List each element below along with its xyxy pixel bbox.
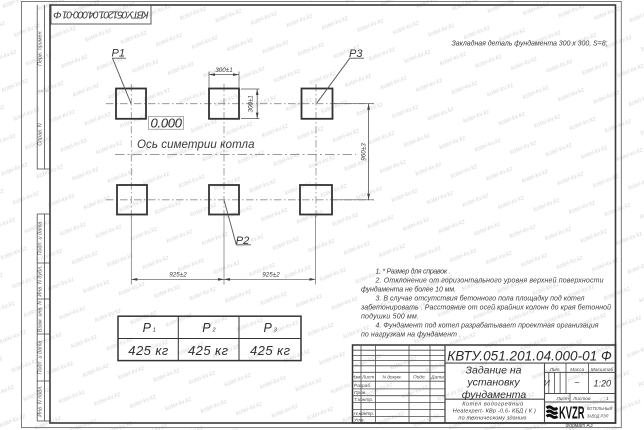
svg-text:1: 1 <box>606 396 609 402</box>
svg-text:Т.контр.: Т.контр. <box>354 397 373 403</box>
svg-text:Листов: Листов <box>572 396 591 402</box>
svg-text:Котел водогрейный: Котел водогрейный <box>462 400 523 407</box>
svg-text:по нагрузкам на фундамент .: по нагрузкам на фундамент . <box>361 330 461 338</box>
svg-text:1: 1 <box>153 328 156 334</box>
svg-text:–: – <box>574 377 580 386</box>
svg-text:И: И <box>544 378 551 388</box>
svg-text:Задание на: Задание на <box>466 364 522 376</box>
svg-text:Перв. примен.: Перв. примен. <box>38 30 44 66</box>
svg-text:300±1: 300±1 <box>215 67 232 74</box>
svg-text:Подп.: Подп. <box>413 375 426 381</box>
svg-text:Изм.: Изм. <box>352 375 362 381</box>
svg-text:1:20: 1:20 <box>594 379 612 389</box>
svg-text:фундамента не более 10 мм.: фундамента не более 10 мм. <box>361 285 456 293</box>
svg-text:P: P <box>143 321 152 335</box>
svg-text:925±2: 925±2 <box>262 272 280 279</box>
svg-text:Дата: Дата <box>430 375 444 381</box>
svg-text:Инв. N подл.: Инв. N подл. <box>38 385 44 417</box>
svg-text:P2: P2 <box>236 235 249 247</box>
svg-text:P3: P3 <box>349 48 363 60</box>
svg-text:Лист: Лист <box>556 396 569 402</box>
svg-text:Лит.: Лит. <box>549 367 561 373</box>
svg-text:425 кг: 425 кг <box>128 343 169 358</box>
svg-text:Heatexpert- КВр -0,6- КБД ( К: Heatexpert- КВр -0,6- КБД ( К ) <box>453 409 536 415</box>
svg-text:Утв.: Утв. <box>354 417 365 423</box>
svg-text:KVZR: KVZR <box>559 402 585 422</box>
svg-text:Справ. N: Справ. N <box>38 123 44 146</box>
svg-text:425 кг: 425 кг <box>188 343 229 358</box>
svg-text:960±3: 960±3 <box>361 143 368 161</box>
svg-text:425 кг: 425 кг <box>250 343 291 358</box>
svg-text:Формат А3: Формат А3 <box>565 423 593 429</box>
svg-text:по техническому зданию: по техническому зданию <box>458 416 526 422</box>
svg-text:P1: P1 <box>112 47 125 59</box>
svg-text:Взам. инв. N: Взам. инв. N <box>38 301 44 333</box>
svg-text:фундамента: фундамента <box>462 389 527 401</box>
svg-text:1. * Размер для справок .: 1. * Размер для справок . <box>376 267 451 275</box>
svg-text:2. Отклонение от горизонтал: 2. Отклонение от горизонтального уровня … <box>375 276 604 284</box>
svg-text:Закладная деталь фундамента 3: Закладная деталь фундамента 300 х 300, S… <box>452 39 608 47</box>
svg-text:P: P <box>202 321 211 335</box>
svg-text:установку: установку <box>466 377 520 389</box>
svg-text:Подп. и дата: Подп. и дата <box>38 222 44 256</box>
svg-text:Лист: Лист <box>361 375 374 381</box>
svg-text:925±2: 925±2 <box>169 272 187 279</box>
svg-text:забетонировать . Расстояние: забетонировать . Расстояние от осей край… <box>360 303 611 311</box>
svg-text:Инв. N дубл.: Инв. N дубл. <box>38 265 44 296</box>
svg-text:P: P <box>264 321 273 335</box>
svg-text:300±1: 300±1 <box>247 95 254 112</box>
svg-text:Пров.: Пров. <box>354 390 367 396</box>
svg-text:2: 2 <box>212 328 216 334</box>
svg-text:Масса: Масса <box>570 367 585 373</box>
svg-text:4. Фундамент под котел раз: 4. Фундамент под котел разрабатывает про… <box>376 321 599 329</box>
svg-text:0.000: 0.000 <box>151 116 183 131</box>
svg-text:Ось симетрии котла: Ось симетрии котла <box>137 139 255 151</box>
svg-text:КВТУ.051201.04.000-01 Ф: КВТУ.051201.04.000-01 Ф <box>53 9 149 21</box>
svg-text:N докум.: N докум. <box>382 375 401 381</box>
svg-text:Масштаб: Масштаб <box>591 367 614 373</box>
svg-text:3. В случае отсутствия бет: 3. В случае отсутствия бетонного пола пл… <box>376 294 585 302</box>
svg-text:ЗАВОД РЭП: ЗАВОД РЭП <box>587 413 609 419</box>
svg-text:Подп. и дата: Подп. и дата <box>38 341 44 375</box>
svg-text:подушки 500 мм.: подушки 500 мм. <box>361 312 419 320</box>
svg-text:Разраб.: Разраб. <box>354 383 371 389</box>
svg-text:Н.контр.: Н.контр. <box>354 411 374 417</box>
svg-text:КВТУ.051.201.04.000-01 Ф: КВТУ.051.201.04.000-01 Ф <box>447 349 612 364</box>
